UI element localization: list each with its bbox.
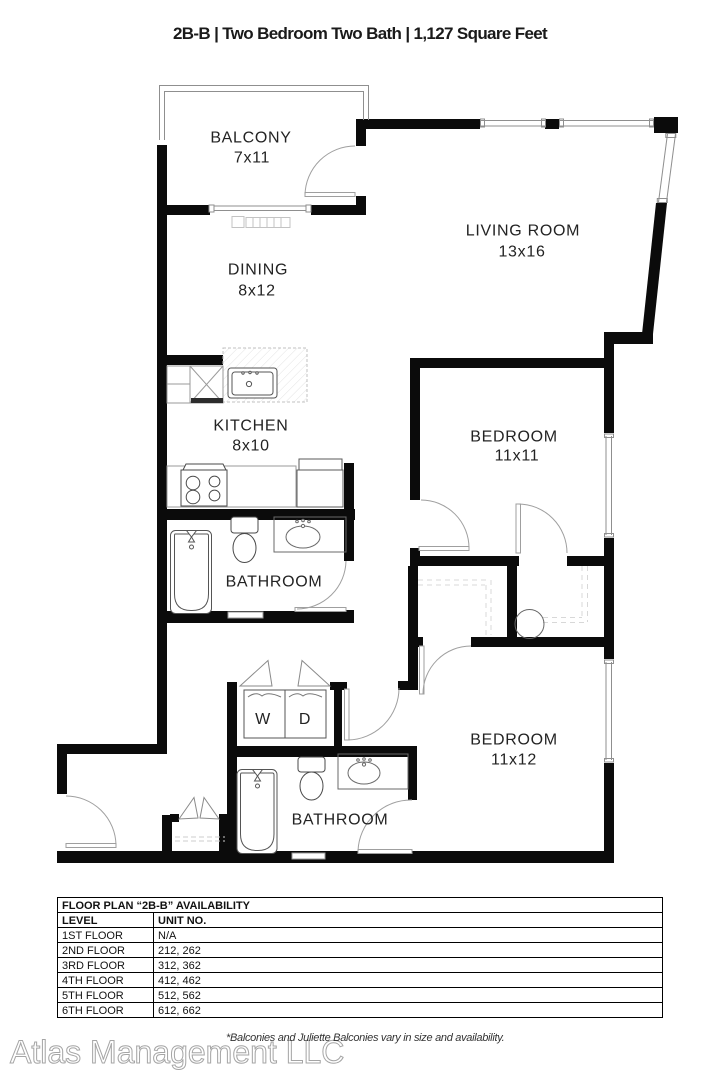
- svg-text:BATHROOM: BATHROOM: [226, 574, 323, 591]
- svg-text:11x11: 11x11: [495, 448, 540, 465]
- svg-text:4TH FLOOR: 4TH FLOOR: [62, 975, 124, 987]
- svg-text:312, 362: 312, 362: [158, 960, 201, 972]
- svg-text:DINING: DINING: [228, 262, 288, 279]
- svg-text:11x12: 11x12: [491, 752, 537, 769]
- svg-text:KITCHEN: KITCHEN: [213, 418, 288, 435]
- svg-text:5TH FLOOR: 5TH FLOOR: [62, 990, 124, 1002]
- svg-text:2ND FLOOR: 2ND FLOOR: [62, 945, 125, 957]
- svg-text:8x10: 8x10: [232, 438, 270, 455]
- svg-text:2B-B | Two Bedroom Two Bath |: 2B-B | Two Bedroom Two Bath | 1,127 Squa…: [173, 24, 548, 43]
- svg-text:512, 562: 512, 562: [158, 990, 201, 1002]
- svg-text:3RD FLOOR: 3RD FLOOR: [62, 960, 125, 972]
- svg-text:7x11: 7x11: [234, 150, 270, 167]
- svg-text:BALCONY: BALCONY: [210, 130, 291, 147]
- svg-text:BEDROOM: BEDROOM: [470, 429, 558, 446]
- svg-text:UNIT NO.: UNIT NO.: [158, 915, 206, 927]
- svg-text:D: D: [299, 711, 311, 728]
- svg-text:412, 462: 412, 462: [158, 975, 201, 987]
- svg-text:1ST FLOOR: 1ST FLOOR: [62, 930, 123, 942]
- svg-text:FLOOR PLAN “2B-B” AVAILABILITY: FLOOR PLAN “2B-B” AVAILABILITY: [62, 900, 251, 912]
- svg-text:BATHROOM: BATHROOM: [292, 812, 389, 829]
- svg-text:N/A: N/A: [158, 930, 177, 942]
- svg-text:BEDROOM: BEDROOM: [470, 732, 558, 749]
- svg-text:13x16: 13x16: [498, 244, 545, 261]
- svg-text:LEVEL: LEVEL: [62, 915, 98, 927]
- svg-text:LIVING ROOM: LIVING ROOM: [466, 223, 580, 240]
- svg-text:212, 262: 212, 262: [158, 945, 201, 957]
- svg-text:612, 662: 612, 662: [158, 1005, 201, 1017]
- svg-text:6TH FLOOR: 6TH FLOOR: [62, 1005, 124, 1017]
- svg-text:8x12: 8x12: [238, 283, 276, 300]
- svg-text:*Balconies and Juliette Balcon: *Balconies and Juliette Balconies vary i…: [226, 1032, 504, 1044]
- svg-text:W: W: [255, 711, 271, 728]
